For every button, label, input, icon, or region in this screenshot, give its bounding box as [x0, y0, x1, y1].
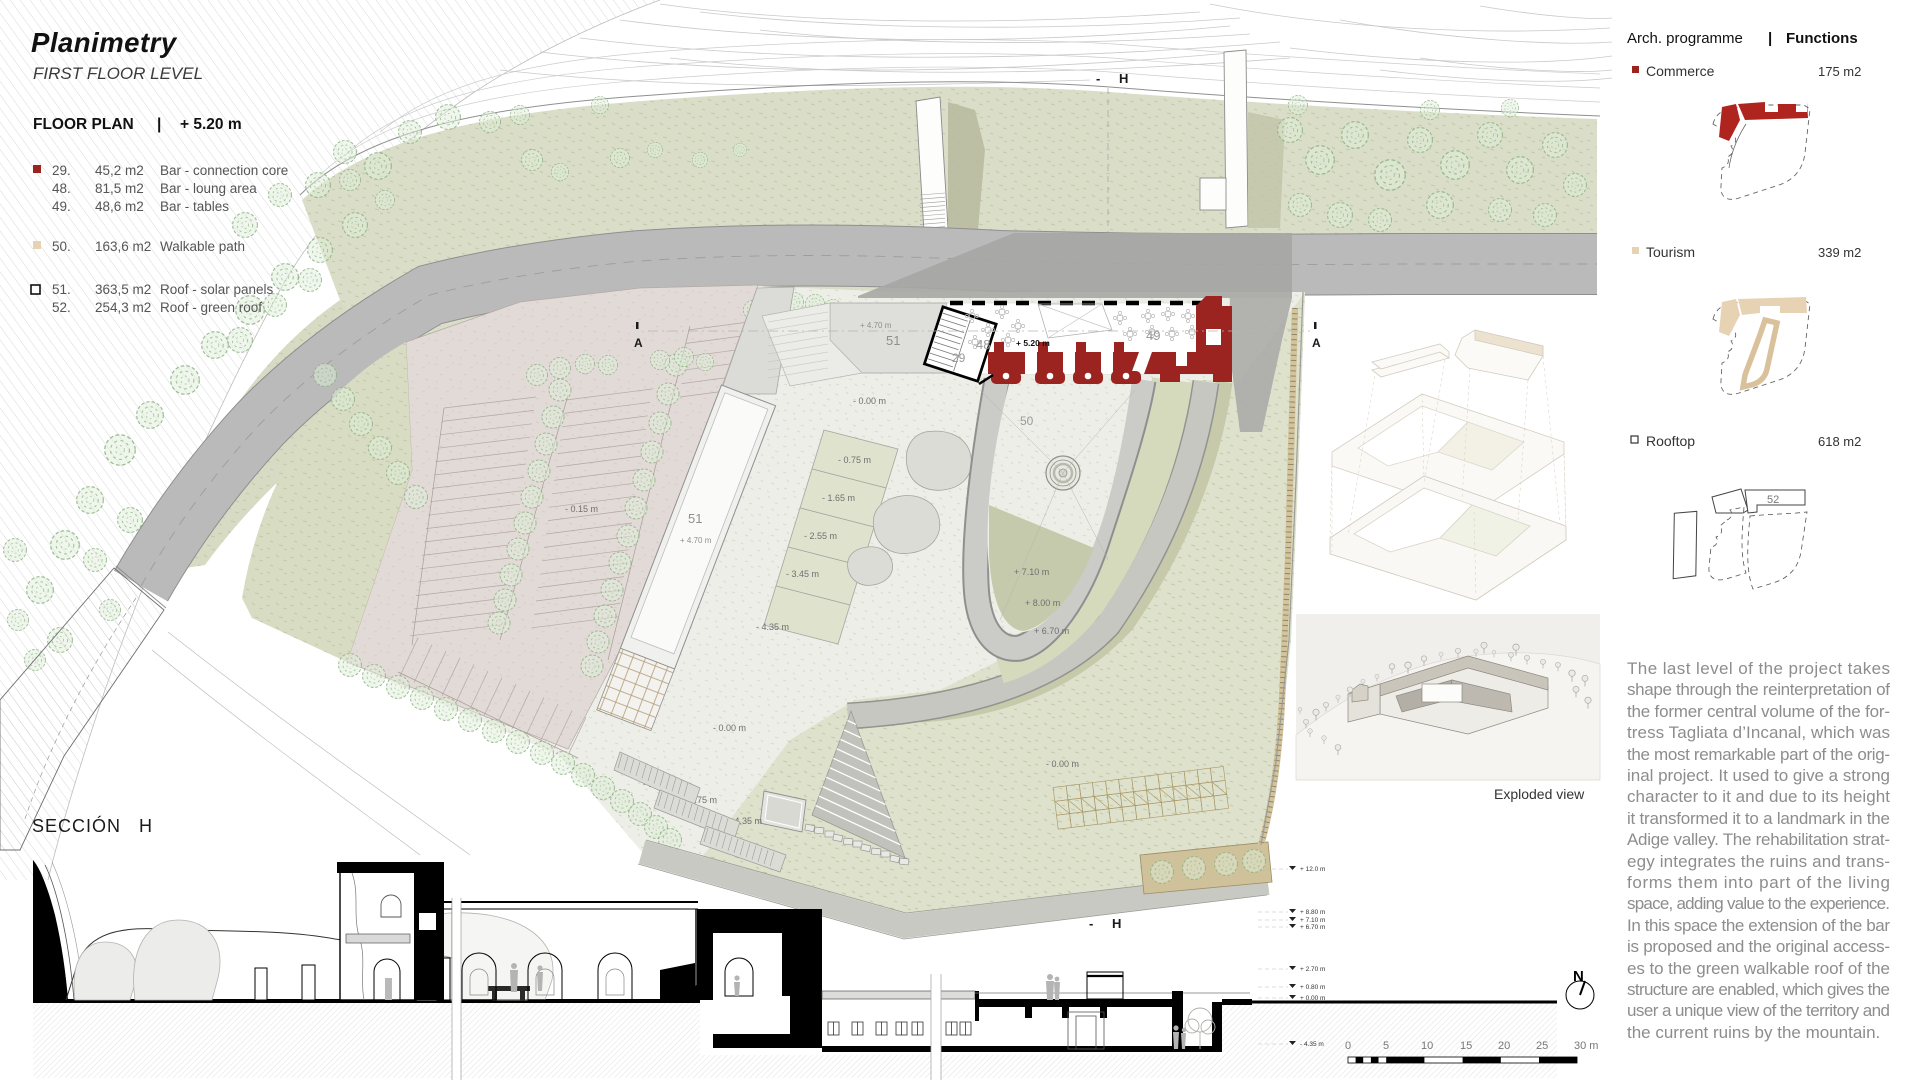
svg-text:- 0.75 m: - 0.75 m	[838, 455, 871, 465]
svg-text:- 2.55 m: - 2.55 m	[804, 531, 837, 541]
svg-text:Adige valley. The rehabilitati: Adige valley. The rehabilitation strat-	[1627, 830, 1890, 849]
svg-text:29.: 29.	[52, 163, 71, 178]
svg-text:51: 51	[688, 511, 702, 526]
svg-text:-: -	[1089, 916, 1093, 931]
svg-text:- 0.00 m: - 0.00 m	[853, 396, 886, 406]
svg-text:-: -	[1096, 71, 1100, 86]
svg-text:Commerce: Commerce	[1646, 63, 1715, 79]
svg-text:- 0.15 m: - 0.15 m	[565, 504, 598, 514]
svg-text:+ 0.00 m: + 0.00 m	[1300, 995, 1325, 1002]
svg-text:Roof - green roof: Roof - green roof	[160, 300, 262, 315]
svg-text:+ 8.00 m: + 8.00 m	[1025, 598, 1060, 608]
svg-text:0: 0	[1345, 1040, 1351, 1052]
svg-text:81,5 m2: 81,5 m2	[95, 181, 144, 196]
svg-text:10: 10	[1421, 1040, 1433, 1052]
svg-text:48.: 48.	[52, 181, 71, 196]
svg-text:- 0.00 m: - 0.00 m	[713, 723, 746, 733]
svg-text:49: 49	[1146, 328, 1160, 343]
svg-text:tress Tagliata d’Incanal, whic: tress Tagliata d’Incanal, which was	[1627, 723, 1890, 742]
svg-text:A: A	[1312, 336, 1321, 350]
svg-text:Planimetry: Planimetry	[31, 27, 178, 58]
svg-text:forms them into part of the li: forms them into part of the living	[1627, 873, 1890, 892]
svg-text:In this space the extension of: In this space the extension of the bar	[1627, 916, 1890, 935]
svg-text:49.: 49.	[52, 199, 71, 214]
svg-text:30 m: 30 m	[1574, 1040, 1598, 1052]
svg-text:+ 8.80 m: + 8.80 m	[1300, 909, 1325, 916]
svg-text:the current ruins by the mount: the current ruins by the mountain.	[1627, 1023, 1880, 1042]
svg-text:50.: 50.	[52, 239, 71, 254]
svg-text:Exploded view: Exploded view	[1494, 786, 1585, 802]
svg-text:+ 5.20 m: + 5.20 m	[1016, 338, 1050, 348]
svg-text:- 3.45 m: - 3.45 m	[786, 569, 819, 579]
svg-text:es to the green walkable roof: es to the green walkable roof of the	[1627, 959, 1890, 978]
svg-text:The last level of the project: The last level of the project takes	[1627, 659, 1890, 678]
svg-text:48,6 m2: 48,6 m2	[95, 199, 144, 214]
svg-text:51.: 51.	[52, 282, 71, 297]
svg-text:20: 20	[1498, 1040, 1510, 1052]
svg-text:+ 5.20 m: + 5.20 m	[180, 116, 242, 133]
svg-text:|: |	[1768, 30, 1772, 47]
svg-text:it transformed it to a landmar: it transformed it to a landmark in the	[1627, 809, 1890, 828]
svg-text:50: 50	[1020, 414, 1034, 428]
svg-text:339 m2: 339 m2	[1818, 245, 1861, 260]
svg-text:is proposed and the original a: is proposed and the original access-	[1627, 937, 1890, 956]
svg-text:+ 6.70 m: + 6.70 m	[1034, 626, 1069, 636]
svg-text:FIRST FLOOR LEVEL: FIRST FLOOR LEVEL	[33, 64, 203, 83]
svg-text:SECCIÓN H: SECCIÓN H	[32, 815, 153, 836]
svg-text:the most remarkable part of th: the most remarkable part of the orig-	[1627, 745, 1890, 764]
svg-text:- 4.35 m: - 4.35 m	[1300, 1041, 1324, 1048]
svg-text:space, adding value to the exp: space, adding value to the experience.	[1627, 894, 1890, 913]
svg-text:254,3 m2: 254,3 m2	[95, 300, 151, 315]
svg-text:Rooftop: Rooftop	[1646, 433, 1695, 449]
svg-text:5: 5	[1383, 1040, 1389, 1052]
svg-text:163,6 m2: 163,6 m2	[95, 239, 151, 254]
svg-text:structure are enabled, which g: structure are enabled, which gives the	[1627, 980, 1890, 999]
svg-text:+ 4.70 m: + 4.70 m	[680, 536, 712, 545]
svg-text:175 m2: 175 m2	[1818, 64, 1861, 79]
svg-text:Bar - tables: Bar - tables	[160, 199, 229, 214]
svg-text:- 1.65 m: - 1.65 m	[822, 493, 855, 503]
svg-text:H: H	[1112, 916, 1121, 931]
svg-text:+ 12.0 m: + 12.0 m	[1300, 866, 1325, 873]
svg-text:52: 52	[1767, 494, 1779, 506]
svg-text:- 0.00 m: - 0.00 m	[1046, 759, 1079, 769]
svg-text:Bar - loung area: Bar - loung area	[160, 181, 257, 196]
svg-text:A: A	[634, 336, 643, 350]
svg-text:52.: 52.	[52, 300, 71, 315]
svg-text:29: 29	[952, 351, 966, 365]
svg-text:Functions: Functions	[1786, 30, 1858, 47]
svg-text:N: N	[1573, 968, 1584, 985]
svg-text:45,2 m2: 45,2 m2	[95, 163, 144, 178]
svg-text:+ 2.70 m: + 2.70 m	[1300, 966, 1325, 973]
svg-text:Bar - connection core: Bar - connection core	[160, 163, 288, 178]
svg-text:|: |	[157, 116, 161, 133]
svg-text:egy integrates the ruins and t: egy integrates the ruins and trans-	[1627, 852, 1890, 871]
svg-text:+ 4.70 m: + 4.70 m	[860, 321, 892, 330]
svg-text:shape through the reinterpreta: shape through the reinterpretation of	[1627, 680, 1890, 699]
svg-text:- 4.35 m: - 4.35 m	[756, 622, 789, 632]
svg-text:Arch. programme: Arch. programme	[1627, 30, 1743, 47]
svg-text:character to it and due to its: character to it and due to its height	[1627, 787, 1890, 806]
svg-text:25: 25	[1536, 1040, 1548, 1052]
svg-text:Tourism: Tourism	[1646, 244, 1695, 260]
svg-text:H: H	[1119, 71, 1128, 86]
svg-text:Walkable path: Walkable path	[160, 239, 245, 254]
svg-text:15: 15	[1460, 1040, 1472, 1052]
svg-text:FLOOR PLAN: FLOOR PLAN	[33, 116, 134, 133]
svg-text:inal project. It used to give: inal project. It used to give a strong	[1627, 766, 1890, 785]
svg-text:48: 48	[976, 337, 990, 352]
svg-text:+ 6.70 m: + 6.70 m	[1300, 924, 1325, 931]
svg-text:+ 0.80 m: + 0.80 m	[1300, 984, 1325, 991]
svg-text:+ 7.10 m: + 7.10 m	[1014, 567, 1049, 577]
svg-text:+ 7.10 m: + 7.10 m	[1300, 917, 1325, 924]
svg-text:Roof - solar panels: Roof - solar panels	[160, 282, 274, 297]
svg-text:618 m2: 618 m2	[1818, 434, 1861, 449]
svg-text:363,5 m2: 363,5 m2	[95, 282, 151, 297]
svg-text:user a unique view of the terr: user a unique view of the territory and	[1627, 1001, 1890, 1020]
svg-text:51: 51	[886, 333, 900, 348]
svg-text:the former central volume of t: the former central volume of the for-	[1627, 702, 1890, 721]
